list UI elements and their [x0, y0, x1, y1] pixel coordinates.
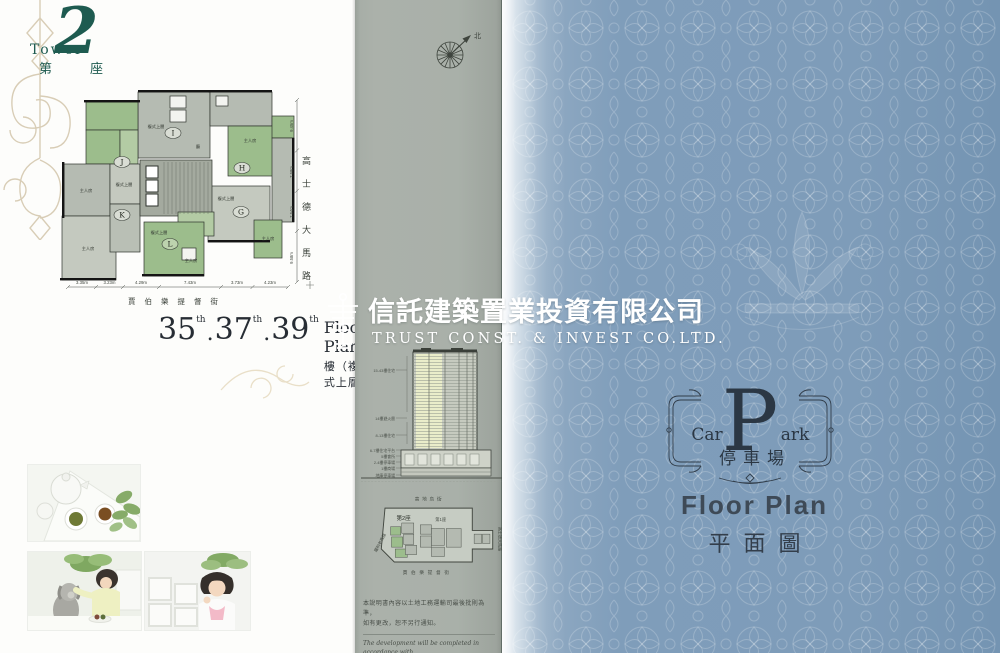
room-label-duplex: 複式上層 — [218, 195, 235, 202]
room-label-master: 主人房 — [185, 257, 198, 264]
caption-floor-1: 35 — [158, 315, 196, 345]
elevation-label: 1樓商場 — [381, 466, 395, 471]
emblem-ark-text: ark — [781, 425, 810, 445]
unit-label-l: L — [168, 240, 173, 249]
dim-label: 4.23m — [264, 280, 276, 285]
room-label-master: 主人房 — [262, 235, 275, 242]
unit-label-g: G — [238, 208, 244, 217]
brochure-scan: Tower 第 2 座 — [0, 0, 1000, 653]
photo-tea-set-image — [28, 465, 140, 541]
room-label-duplex: 複式上層 — [148, 123, 165, 130]
dim-label: 7.58m — [289, 166, 294, 178]
tower-number: 2 — [54, 0, 99, 64]
caption-separator: . — [207, 323, 214, 345]
room-label-master: 主人房 — [82, 245, 95, 252]
elevation-label: 2-4樓停車場 — [374, 460, 395, 465]
cover-floor-plan-zh: 平面圖 — [637, 526, 872, 558]
dim-label: 9.45m — [289, 120, 294, 132]
car-park-emblem: P Car ark 停車場 — [645, 360, 855, 485]
elevation-labels: 15-43樓住宅 14樓避火層 8-13樓住宅 6-7樓住宅平台 5樓會所 2-… — [370, 368, 395, 478]
site-tower2-label: 第2座 — [396, 514, 411, 522]
room-label-master: 主人房 — [244, 137, 257, 144]
site-tower1-label: 第1座 — [435, 516, 447, 523]
elevation-label: 地庫停車場 — [376, 473, 396, 478]
dimension-line-right — [295, 98, 299, 284]
left-page: Tower 第 2 座 — [0, 0, 355, 653]
street-name-bottom: 賈伯樂提督街 — [128, 296, 227, 307]
street-name-right: 高士德大馬路 — [300, 156, 313, 294]
elevation-label: 15-43樓住宅 — [373, 368, 395, 373]
dimension-labels-bottom: 3.35m 3.23m 4.29m 7.43m 3.73m 4.23m — [76, 280, 276, 285]
disclaimer-en-line1: The development will be completed in acc… — [363, 639, 495, 653]
tower-label-zh-first: 第 — [39, 58, 52, 77]
disclaimer-en: The development will be completed in acc… — [363, 634, 495, 653]
photo-girl-portrait-image — [145, 552, 250, 630]
dim-label: 3.35m — [76, 280, 88, 285]
caption-ordinal: th — [253, 315, 262, 325]
elevation-label: 14樓避火層 — [375, 416, 395, 421]
site-street-top: 高地烏街 — [415, 496, 445, 503]
floor-plan-drawing: I J H K G L 主人房 主人房 複式上層 複式上層 複式上層 複式上層 — [58, 90, 318, 312]
dim-label: 7.43m — [184, 280, 196, 285]
building-elevation-diagram: 15-43樓住宅 14樓避火層 8-13樓住宅 6-7樓住宅平台 5樓會所 2-… — [355, 348, 502, 490]
unit-label-h: H — [239, 164, 246, 173]
unit-label-k: K — [119, 211, 125, 220]
elevation-label: 6-7樓住宅平台 — [370, 448, 395, 453]
company-name-en: TRUST CONST. & INVEST CO.LTD. — [372, 331, 726, 347]
dim-label: 3.23m — [104, 280, 116, 285]
tower-label-zh-last: 座 — [90, 58, 103, 77]
tower-2-badge: Tower 第 2 座 — [26, 12, 136, 82]
dim-label: 9.58m — [289, 252, 294, 264]
compass-north-label: 北 — [474, 32, 481, 40]
photo-tea-set — [28, 465, 140, 541]
unit-label-j: J — [119, 158, 123, 167]
emblem-car-text: Car — [691, 425, 723, 445]
photo-girl-portrait — [145, 552, 250, 630]
caption-ordinal: th — [196, 315, 205, 325]
room-label-duplex: 複式上層 — [151, 229, 168, 236]
site-street-bottom: 賈伯樂提督街 — [403, 569, 453, 576]
dim-label: 4.29m — [135, 280, 147, 285]
dim-label: 3.73m — [231, 280, 243, 285]
emblem-carpark-zh: 停車場 — [719, 449, 791, 468]
compass-icon: 北 — [430, 25, 490, 77]
photo-woman-with-dog-image — [28, 552, 141, 630]
dimension-line-bottom — [66, 285, 290, 289]
room-label-master: 主人房 — [80, 187, 93, 194]
company-logo-icon — [322, 290, 364, 354]
room-label-duplex: 複式上層 — [116, 181, 133, 188]
dim-label: 7.54m — [289, 206, 294, 218]
elevation-label: 5樓會所 — [381, 454, 395, 459]
photo-woman-with-dog — [28, 552, 141, 630]
disclaimer-zh-line1: 本說明書內容以土地工務運輸司最後批則為準， — [363, 600, 495, 620]
caption-flourish-ornament — [215, 338, 315, 408]
site-key-plan: 高地烏街 第2座 第1座 羅利老馬路 高士德大馬路 賈伯樂提督街 — [372, 486, 502, 586]
elevation-label: 8-13樓住宅 — [376, 433, 396, 438]
cover-title: Floor Plan 平面圖 — [637, 490, 872, 558]
cover-floor-plan-en: Floor Plan — [637, 490, 872, 521]
disclaimer-text: 本說明書內容以土地工務運輸司最後批則為準， 如有更改，恕不另行通知。 The d… — [363, 600, 495, 653]
caption-ordinal: th — [309, 315, 318, 325]
company-name-zh: 信託建築置業投資有限公司 — [368, 298, 704, 328]
unit-label-i: I — [172, 129, 175, 138]
disclaimer-zh-line2: 如有更改，恕不另行通知。 — [363, 620, 495, 630]
